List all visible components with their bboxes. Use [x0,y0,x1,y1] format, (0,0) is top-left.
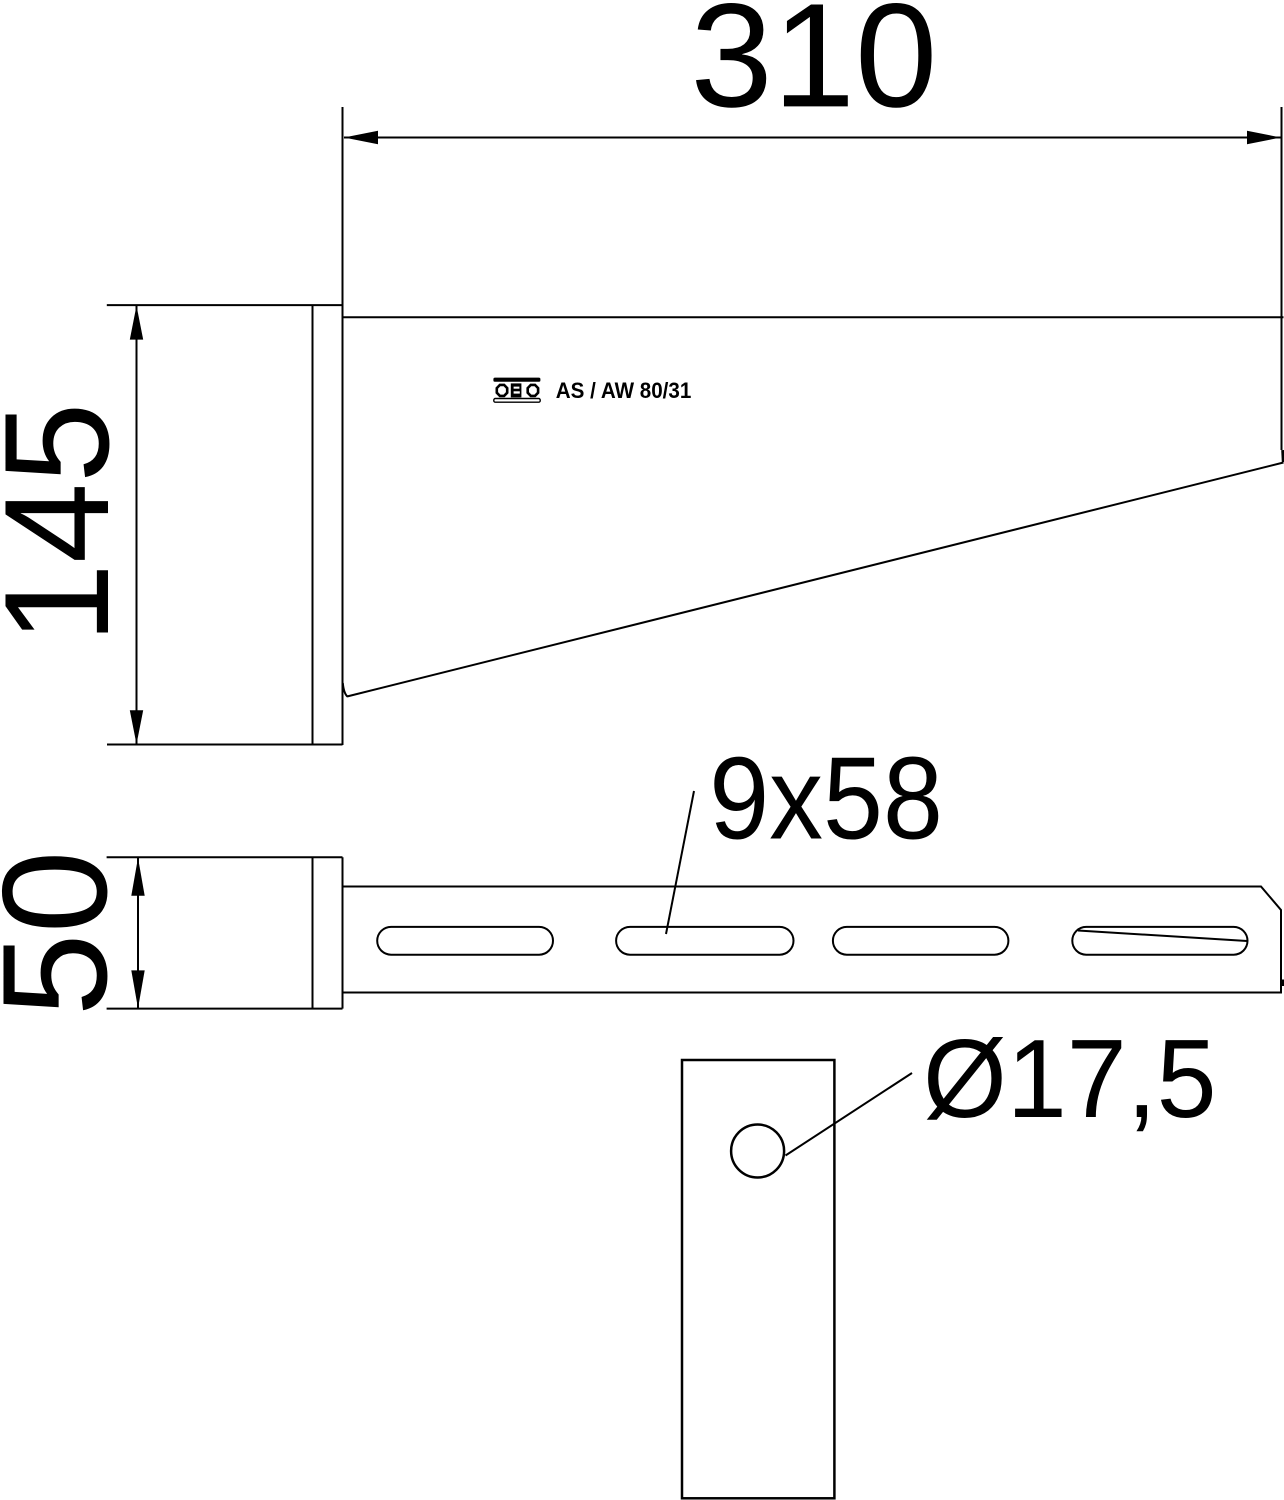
svg-text:50: 50 [0,850,138,1016]
svg-text:310: 310 [690,0,937,138]
svg-text:145: 145 [0,403,140,644]
svg-text:9x58: 9x58 [709,732,943,863]
svg-text:Ø17,5: Ø17,5 [923,1017,1217,1141]
svg-text:AS / AW 80/31: AS / AW 80/31 [556,378,692,403]
